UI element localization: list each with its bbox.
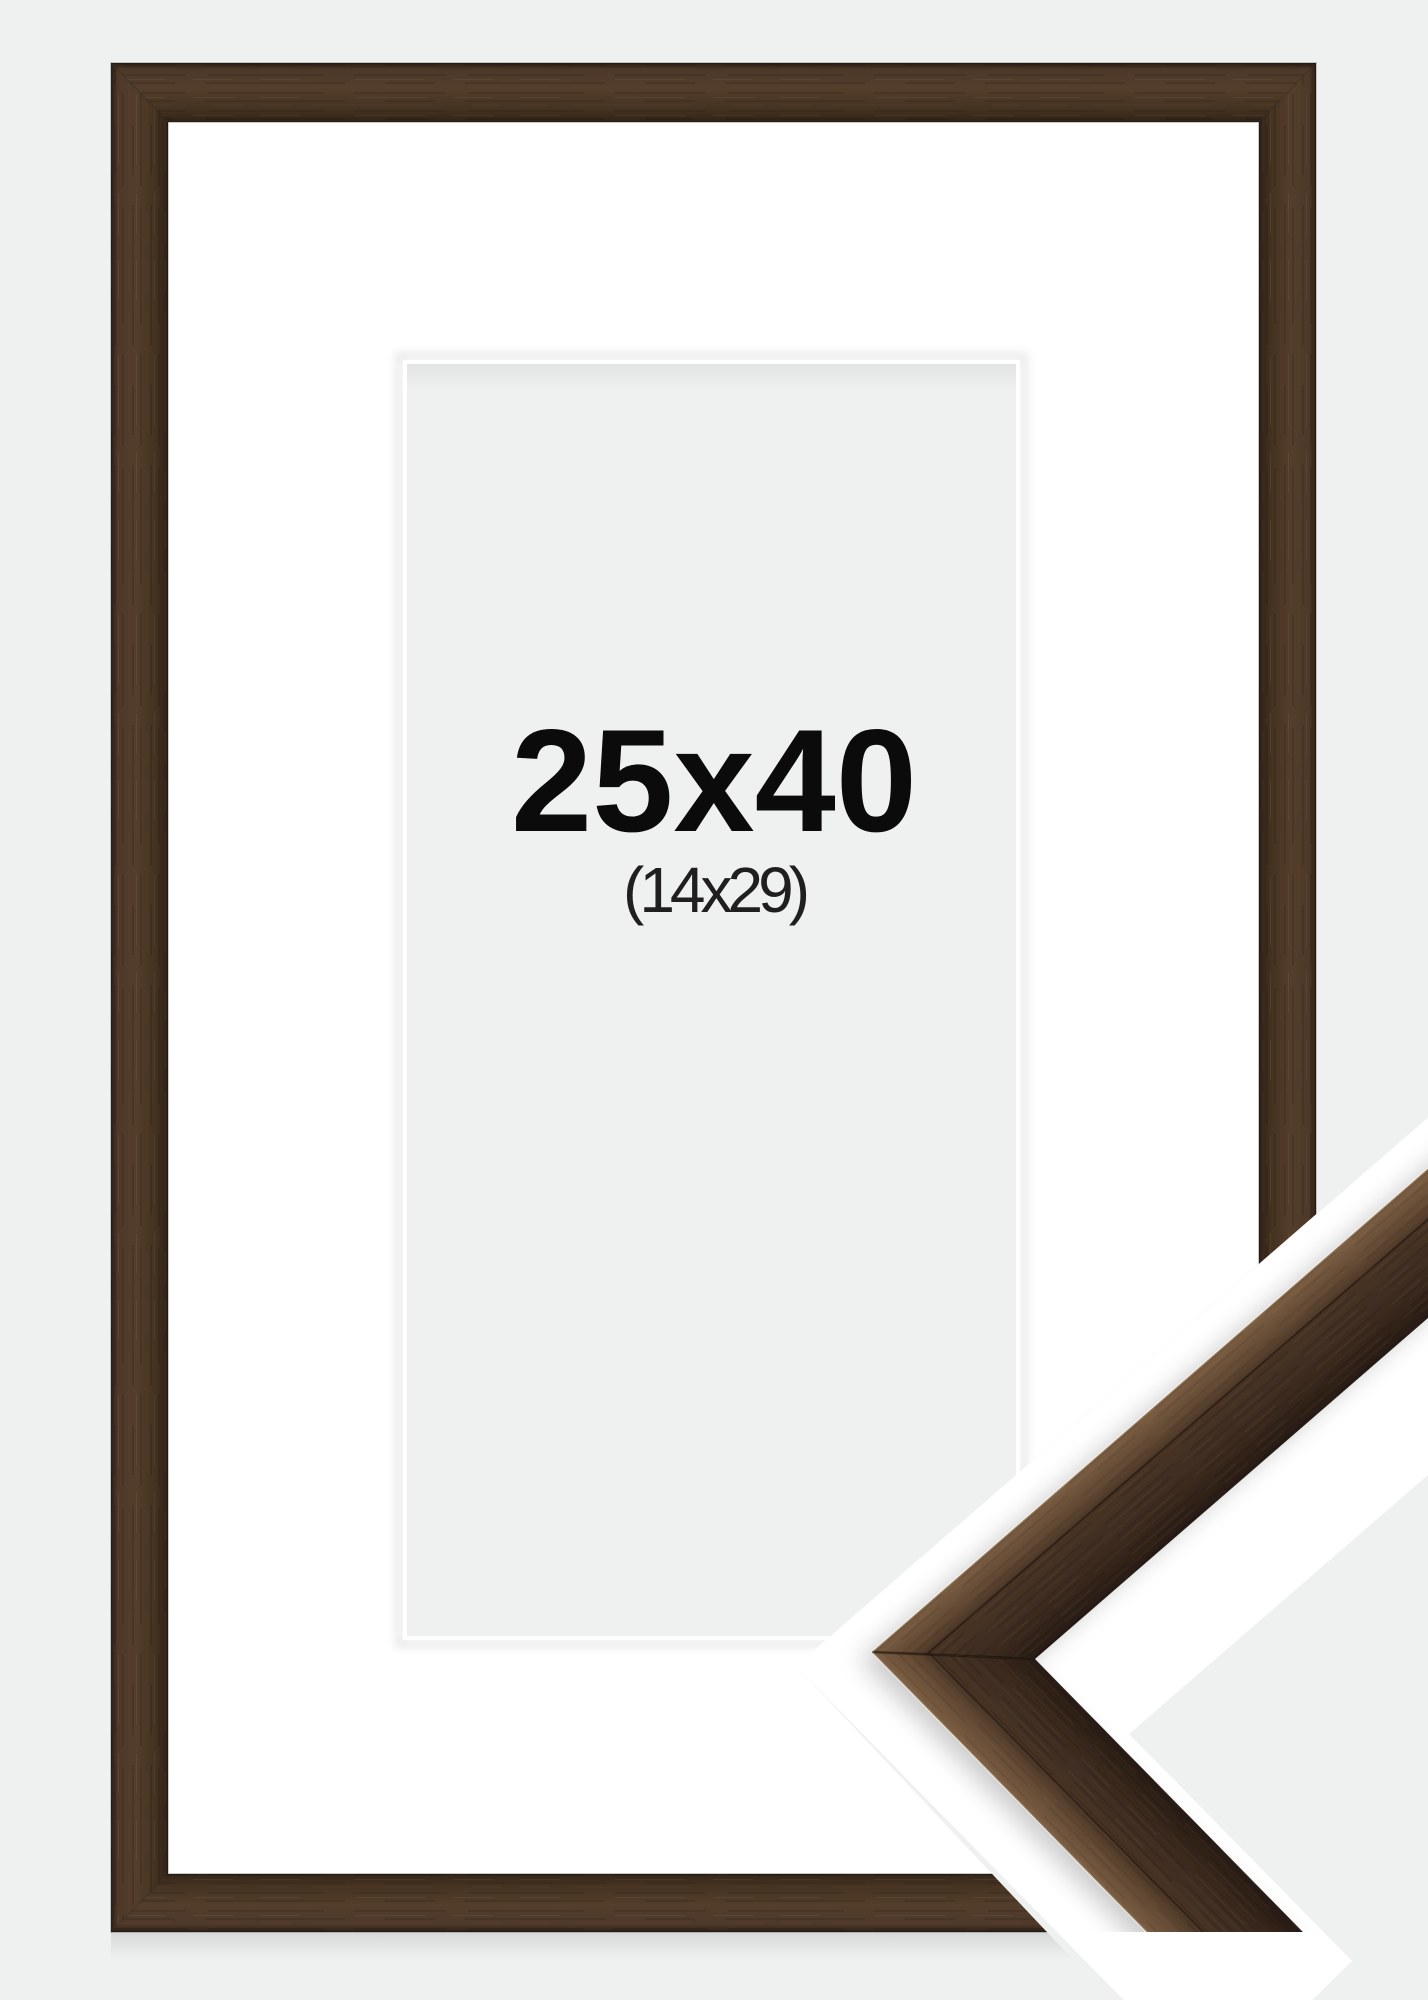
product-image: 25x40 (14x29)	[0, 0, 1428, 2000]
mat-opening	[405, 362, 1018, 1638]
frame-top-grain	[111, 63, 1316, 122]
frame-photo	[0, 0, 1428, 2000]
frame-left-grain	[111, 63, 168, 1932]
mat-opening-inner-shade	[407, 364, 1016, 394]
frame-right-grain	[1259, 63, 1316, 1932]
